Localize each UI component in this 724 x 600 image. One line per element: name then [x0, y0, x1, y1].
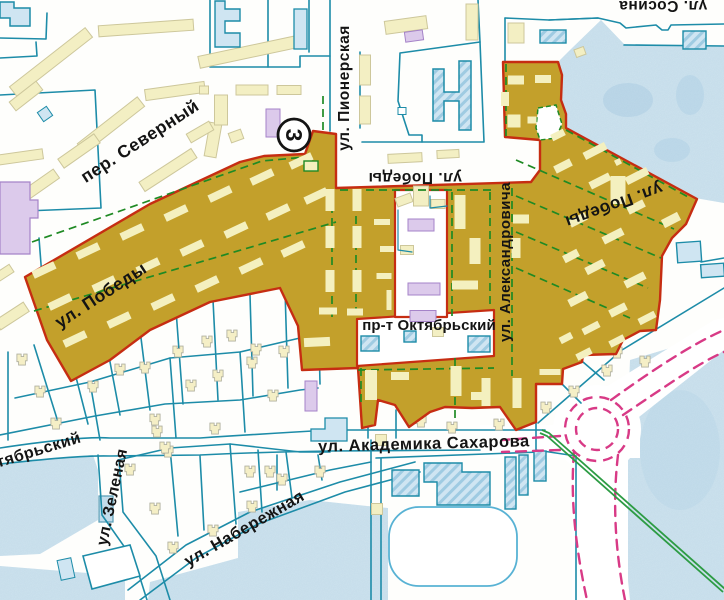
- svg-text:ул. Сосина: ул. Сосина: [619, 0, 707, 14]
- svg-text:3: 3: [281, 129, 307, 142]
- svg-text:ул. Александровича: ул. Александровича: [497, 182, 514, 342]
- svg-text:ул. Пионерская: ул. Пионерская: [336, 25, 353, 151]
- svg-text:ул. Победы: ул. Победы: [368, 169, 462, 186]
- svg-text:пр-т Октябрьский: пр-т Октябрьский: [362, 317, 496, 334]
